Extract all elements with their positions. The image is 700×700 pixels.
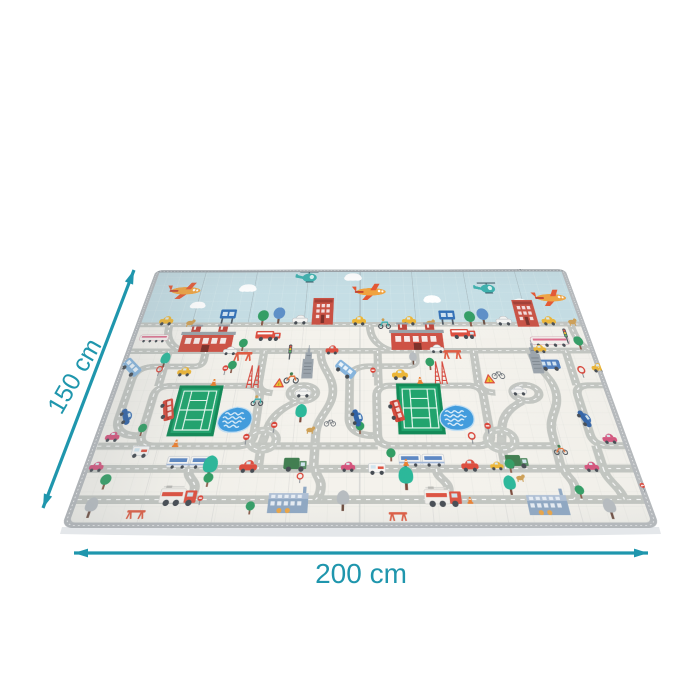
svg-text:150 cm: 150 cm <box>42 334 107 419</box>
svg-text:200 cm: 200 cm <box>315 558 407 589</box>
